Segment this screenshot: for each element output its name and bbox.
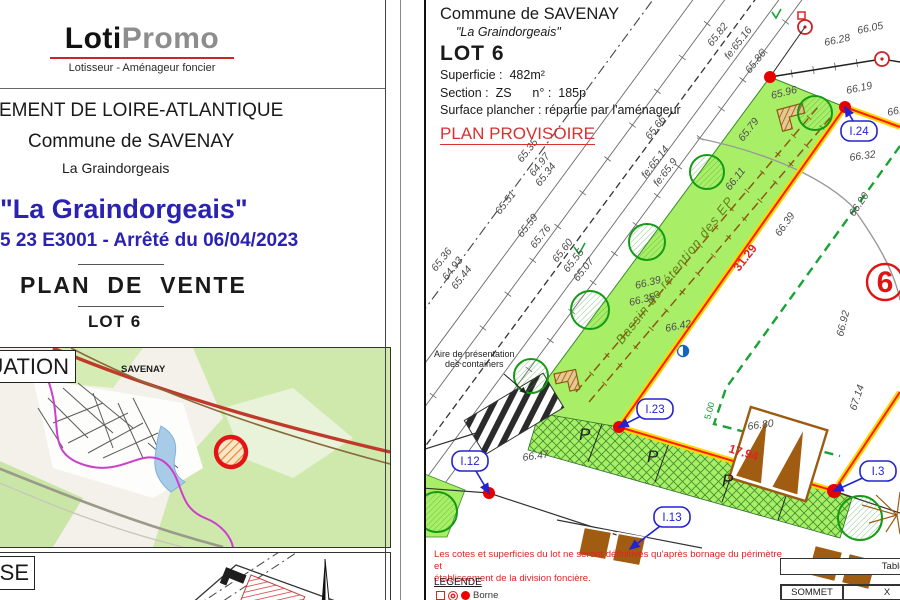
containers-label-2: des containers <box>434 359 515 369</box>
measurement-label: 66.92 <box>834 309 852 338</box>
measurement-label: 67.14 <box>847 383 867 412</box>
borne-dot-icon <box>461 591 470 600</box>
table-title: Tableau d <box>780 558 900 575</box>
vertex-label: I.23 <box>645 404 664 416</box>
logo-wordmark: LotiPromo <box>42 22 242 56</box>
plan-note: Les cotes et superficies du lot ne seron… <box>434 549 784 585</box>
page-edge <box>400 0 401 600</box>
tree-icon <box>798 96 832 130</box>
masse-sketch <box>0 552 391 600</box>
logo-promo: Promo <box>122 22 220 55</box>
plan-provisoire-stamp: PLAN PROVISOIRE <box>440 125 595 145</box>
borne-circle-icon <box>448 591 458 600</box>
col-sommet: SOMMET <box>781 585 843 600</box>
containers-label-1: Aire de présentation <box>434 349 515 359</box>
logo-loti: Loti <box>65 22 122 55</box>
logo-underline <box>50 57 234 59</box>
left-page: LotiPromo Lotisseur - Aménageur foncier … <box>0 0 385 600</box>
logo-tagline: Lotisseur - Aménageur foncier <box>42 62 242 74</box>
rp-place: "La Graindorgeais" <box>456 26 681 39</box>
measurement-label: 66.19 <box>845 80 873 97</box>
legend-borne-label: Borne <box>473 590 498 600</box>
situation-map-title: TUATION <box>0 350 76 383</box>
vertex-label: I.12 <box>460 456 479 468</box>
borne-square-icon <box>436 591 445 600</box>
rp-lot-title: LOT 6 <box>440 43 681 65</box>
green-dimension: 5.00 <box>702 401 716 421</box>
place-line: La Graindorgeais <box>62 160 169 176</box>
measurement-label: 65.51 <box>493 189 519 217</box>
lotipromo-logo: LotiPromo Lotisseur - Aménageur foncier <box>42 22 242 74</box>
site-marker <box>216 437 246 467</box>
tree-icon <box>514 359 548 393</box>
masse-title: SE <box>0 556 35 590</box>
department-line: RTEMENT DE LOIRE-ATLANTIQUE <box>0 100 283 122</box>
tree-icon <box>426 492 457 532</box>
rp-surface-plancher: Surface plancher : répartie par l'aménag… <box>440 104 681 117</box>
measurement-label: 66.39 <box>773 210 798 239</box>
coordinates-table: Tableau d SOMMET X I.2 13289 <box>780 558 900 600</box>
tree-icon <box>629 224 665 260</box>
rp-superficie: Superficie : 482m² <box>440 69 681 82</box>
page-border <box>385 0 386 600</box>
project-title: "La Graindorgeais" <box>0 194 248 225</box>
legend-row: Borne <box>436 590 498 600</box>
measurement-label: 66.28 <box>823 32 851 49</box>
measurement-label: 66.47 <box>522 448 551 464</box>
right-header: Commune de SAVENAY "La Graindorgeais" LO… <box>440 6 681 145</box>
right-page: 6 Bassin de rétention des EP 65.3564.976… <box>424 0 900 600</box>
measurement-label: 65.86 <box>743 48 769 76</box>
measurement-label: 66.05 <box>856 20 884 37</box>
lot-number: 6 <box>877 266 894 299</box>
parking-letter: P <box>579 425 591 444</box>
col-x: X <box>843 585 900 600</box>
parking-letter: P <box>722 471 734 490</box>
measurement-label: 66.33 <box>886 102 900 119</box>
containers-label: Aire de présentation des containers <box>434 349 515 370</box>
header-divider <box>0 88 385 89</box>
plan-de-vente-document: LotiPromo Lotisseur - Aménageur foncier … <box>0 0 900 600</box>
divider <box>78 264 164 265</box>
note-line-2: établissement de la division foncière. <box>434 573 784 585</box>
north-property-line <box>770 59 882 77</box>
divider <box>78 306 164 307</box>
permit-reference: 5 23 E3001 - Arrêté du 06/04/2023 <box>0 230 298 252</box>
vertex-label: I.24 <box>849 126 869 138</box>
vertex-label: I.13 <box>662 512 681 524</box>
tree-icon <box>571 291 609 329</box>
rp-section: Section : ZS n° : 185p <box>440 87 681 100</box>
vertex-label: I.3 <box>872 466 885 478</box>
rp-commune: Commune de SAVENAY <box>440 6 681 23</box>
note-line-1: Les cotes et superficies du lot ne seron… <box>434 549 784 573</box>
table-grid: SOMMET X I.2 13289 <box>780 584 900 600</box>
legend-title: LEGENDE <box>434 577 482 588</box>
tree-icon <box>838 496 882 540</box>
commune-line: Commune de SAVENAY <box>28 131 234 153</box>
masse-sketch-drawing <box>0 553 390 600</box>
lot-label: LOT 6 <box>88 312 141 332</box>
map-town-label: SAVENAY <box>121 364 166 375</box>
measurement-label: 66.32 <box>849 148 877 164</box>
tree-icon <box>690 155 724 189</box>
document-type: PLAN DE VENTE <box>20 272 247 299</box>
parking-letter: P <box>647 447 659 466</box>
